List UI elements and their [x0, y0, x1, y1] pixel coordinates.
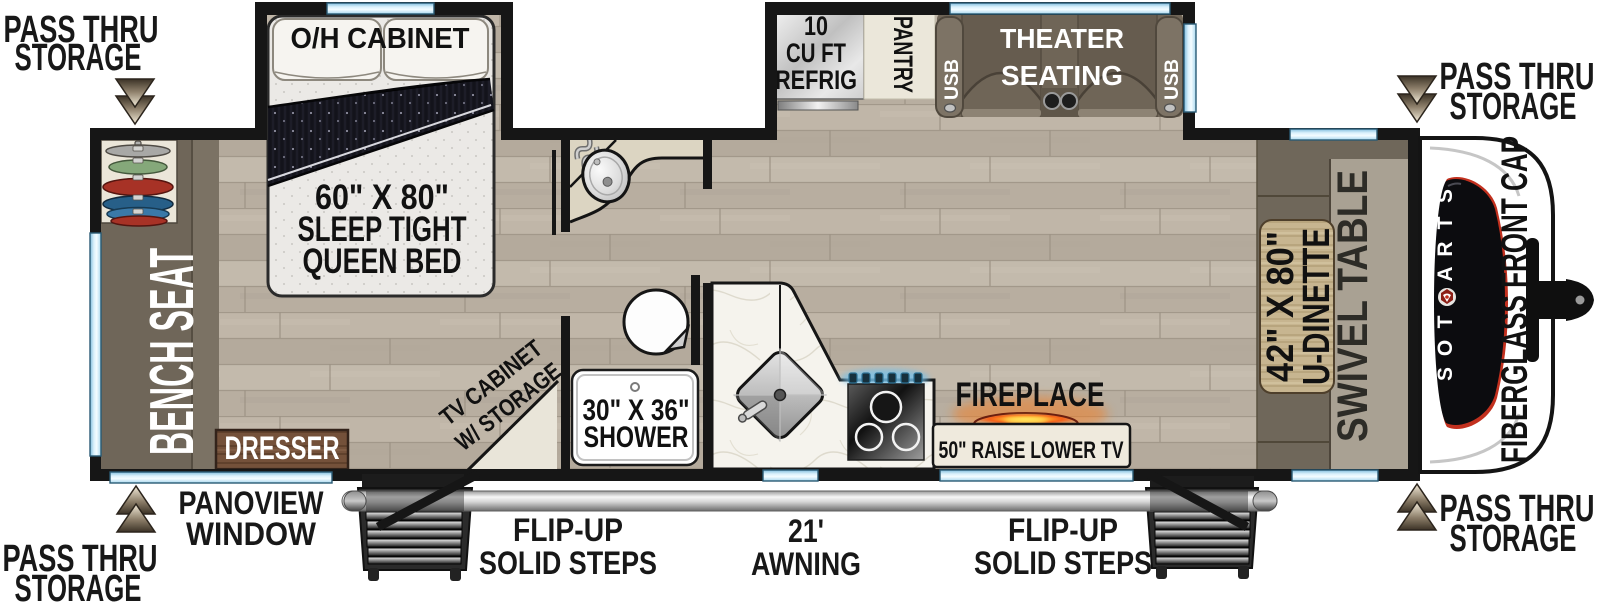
- svg-text:USB: USB: [942, 59, 963, 100]
- svg-text:10: 10: [804, 11, 828, 41]
- svg-text:FIBERGLASS FRONT CAP: FIBERGLASS FRONT CAP: [1494, 136, 1535, 463]
- svg-text:QUEEN BED: QUEEN BED: [303, 242, 462, 281]
- svg-text:USB: USB: [1162, 59, 1183, 100]
- svg-text:T: T: [1434, 315, 1457, 328]
- svg-text:PANTRY: PANTRY: [888, 16, 918, 93]
- svg-text:WINDOW: WINDOW: [186, 516, 317, 552]
- svg-text:R: R: [1434, 241, 1457, 256]
- svg-text:O: O: [1434, 340, 1457, 356]
- svg-text:SOLID STEPS: SOLID STEPS: [479, 545, 657, 581]
- svg-text:A: A: [1434, 266, 1457, 281]
- svg-text:U-DINETTE: U-DINETTE: [1296, 228, 1338, 385]
- svg-text:SHOWER: SHOWER: [584, 421, 689, 454]
- svg-text:SOLID STEPS: SOLID STEPS: [974, 545, 1152, 581]
- svg-text:THEATER: THEATER: [1000, 23, 1124, 54]
- svg-text:STORAGE: STORAGE: [15, 568, 142, 604]
- svg-text:CU FT: CU FT: [786, 38, 846, 68]
- svg-text:AWNING: AWNING: [751, 546, 861, 582]
- svg-text:STORAGE: STORAGE: [15, 37, 142, 79]
- svg-text:50" RAISE LOWER TV: 50" RAISE LOWER TV: [939, 437, 1124, 464]
- svg-text:S: S: [1434, 189, 1457, 203]
- svg-text:FLIP-UP: FLIP-UP: [513, 512, 623, 548]
- svg-text:SEATING: SEATING: [1001, 60, 1123, 91]
- svg-text:BENCH SEAT: BENCH SEAT: [138, 248, 207, 455]
- svg-text:DRESSER: DRESSER: [225, 430, 340, 466]
- svg-text:O/H CABINET: O/H CABINET: [291, 23, 470, 55]
- svg-text:T: T: [1434, 216, 1457, 229]
- svg-text:STORAGE: STORAGE: [1450, 86, 1577, 128]
- svg-text:FLIP-UP: FLIP-UP: [1008, 512, 1118, 548]
- svg-text:21': 21': [788, 513, 824, 549]
- svg-text:FIREPLACE: FIREPLACE: [956, 376, 1105, 414]
- svg-text:STORAGE: STORAGE: [1450, 518, 1577, 560]
- svg-text:REFRIG: REFRIG: [775, 65, 857, 95]
- svg-text:S: S: [1434, 367, 1457, 381]
